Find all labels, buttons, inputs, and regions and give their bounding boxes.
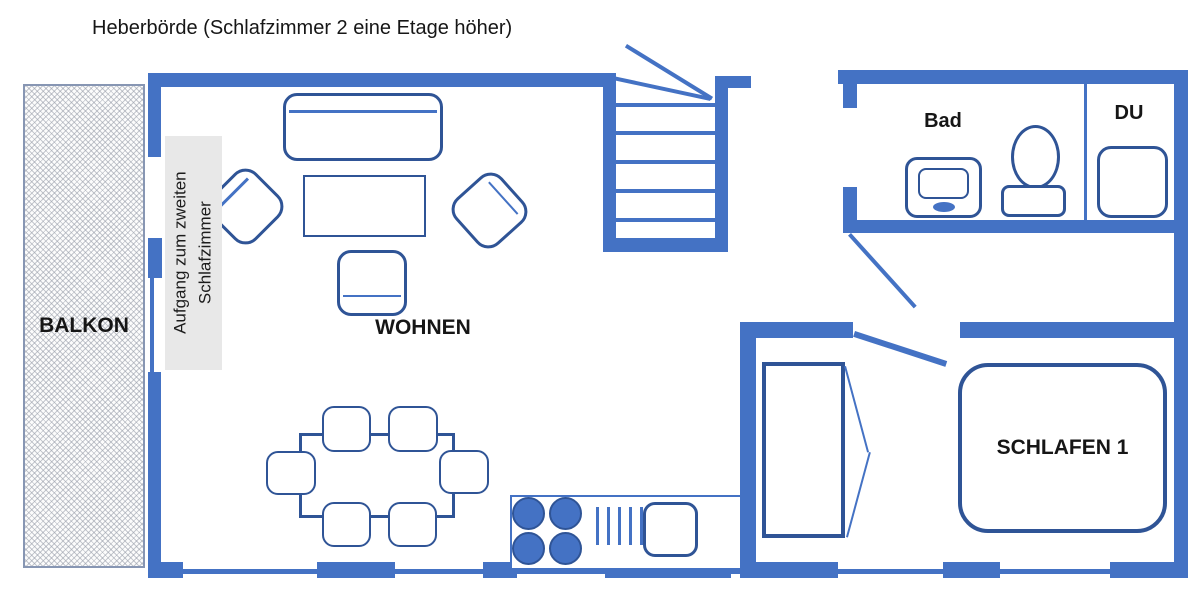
bath-label: Bad — [893, 110, 993, 133]
bedroom-door-leaf — [853, 331, 947, 367]
armchair-right-backrest-line — [488, 181, 519, 215]
dining-chair-bottom-2 — [388, 502, 437, 547]
bedroom-label: SCHLAFEN 1 — [997, 436, 1129, 460]
bath-door-leaf — [848, 233, 917, 308]
toilet-bowl — [1011, 125, 1060, 189]
bedroom-hall-wall — [740, 322, 756, 578]
drainer-line — [596, 507, 599, 545]
wardrobe-door-line-lower — [846, 452, 870, 537]
wall-left-lower — [148, 372, 161, 578]
stair-step — [616, 189, 715, 193]
dining-chair-left — [266, 451, 316, 495]
stair-step — [616, 160, 715, 164]
sink-basin — [918, 168, 969, 199]
stairs-wall-bottom — [603, 238, 728, 252]
wall-bottom-corner-left — [148, 562, 183, 578]
balcony-label: BALKON — [39, 314, 129, 338]
floorplan-canvas: Heberbörde (Schlafzimmer 2 eine Etage hö… — [0, 0, 1200, 614]
dining-chair-bottom-1 — [322, 502, 371, 547]
wall-top-bath — [838, 70, 1188, 84]
sofa-backrest-line — [289, 110, 437, 113]
shower-label: DU — [1079, 102, 1179, 125]
balcony-area: BALKON — [23, 84, 145, 568]
stove-burner — [549, 532, 582, 565]
toilet-base — [1001, 185, 1066, 217]
stairs-wall-left — [603, 76, 616, 252]
shower-tray — [1097, 146, 1168, 218]
wall-bottom-bed-left — [752, 562, 838, 578]
armchair-right — [445, 166, 534, 255]
wall-top-living — [148, 73, 616, 87]
sink-drain — [933, 202, 955, 212]
stairs-note-line2: Schlafzimmer — [194, 172, 219, 335]
dining-chair-right — [439, 450, 489, 494]
window-bottom-1 — [317, 562, 395, 578]
footstool-backrest-line — [343, 295, 401, 298]
stove-burner — [512, 497, 545, 530]
stair-step — [616, 103, 715, 107]
stairs-wall-cap — [715, 76, 751, 88]
living-room-label: WOHNEN — [343, 316, 503, 340]
drainer-line — [607, 507, 610, 545]
sofa — [283, 93, 443, 161]
kitchen-sink — [643, 502, 698, 557]
stair-step — [616, 131, 715, 135]
stove-burner — [512, 532, 545, 565]
coffee-table — [303, 175, 426, 237]
window-left — [150, 278, 154, 372]
kitchen-counter — [510, 495, 742, 570]
stairs-note-text: Aufgang zum zweiten Schlafzimmer — [169, 172, 218, 335]
footstool-chair — [337, 250, 407, 316]
drainer-line — [618, 507, 621, 545]
bedroom-wall-top-left — [740, 322, 853, 338]
dining-chair-top-2 — [388, 406, 438, 452]
bedroom-wall-top-right — [960, 322, 1188, 338]
wall-left-mid — [148, 238, 162, 278]
bath-wall-bottom — [848, 220, 1188, 233]
dining-chair-top-1 — [322, 406, 371, 452]
stairs-note-line1: Aufgang zum zweiten — [169, 172, 194, 335]
window-bottom-3 — [943, 562, 1000, 578]
wardrobe-door-line-upper — [844, 366, 869, 452]
stairs-wall-right — [715, 76, 728, 252]
wall-bottom-corner-right — [1110, 562, 1188, 578]
drainer-line — [629, 507, 632, 545]
bath-wall-left-upper — [843, 70, 857, 108]
bed: SCHLAFEN 1 — [958, 363, 1167, 533]
page-title: Heberbörde (Schlafzimmer 2 eine Etage hö… — [92, 17, 512, 40]
stove-burner — [549, 497, 582, 530]
stairs-note-panel: Aufgang zum zweiten Schlafzimmer — [165, 136, 222, 370]
wardrobe — [762, 362, 845, 538]
stair-step — [616, 218, 715, 222]
wall-left-upper — [148, 73, 161, 157]
